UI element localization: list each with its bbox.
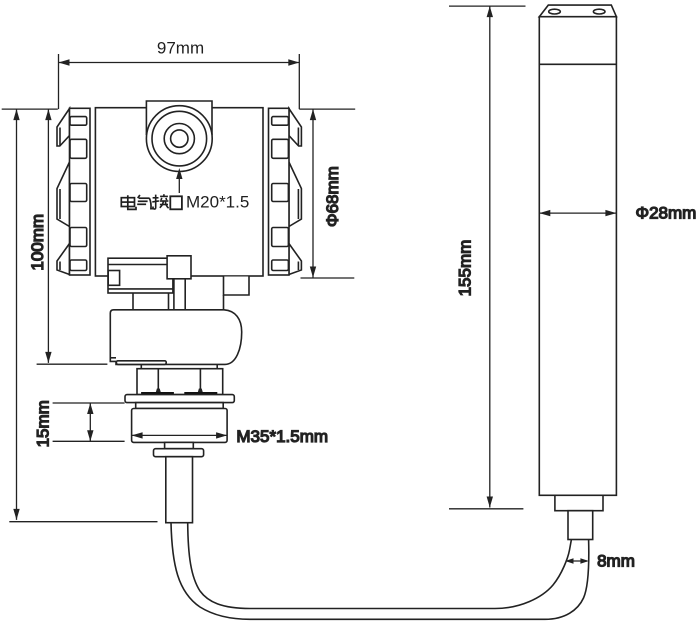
svg-text:155mm: 155mm	[455, 240, 474, 297]
svg-text:Φ28mm: Φ28mm	[636, 204, 697, 223]
svg-text:Φ68mm: Φ68mm	[323, 166, 342, 227]
svg-text:100mm: 100mm	[28, 214, 47, 271]
svg-text:M35*1.5mm: M35*1.5mm	[236, 427, 328, 446]
svg-text:97mm: 97mm	[157, 39, 204, 58]
svg-text:8mm: 8mm	[597, 552, 635, 571]
svg-text:15mm: 15mm	[33, 400, 52, 447]
svg-text:M20*1.5: M20*1.5	[186, 193, 249, 212]
